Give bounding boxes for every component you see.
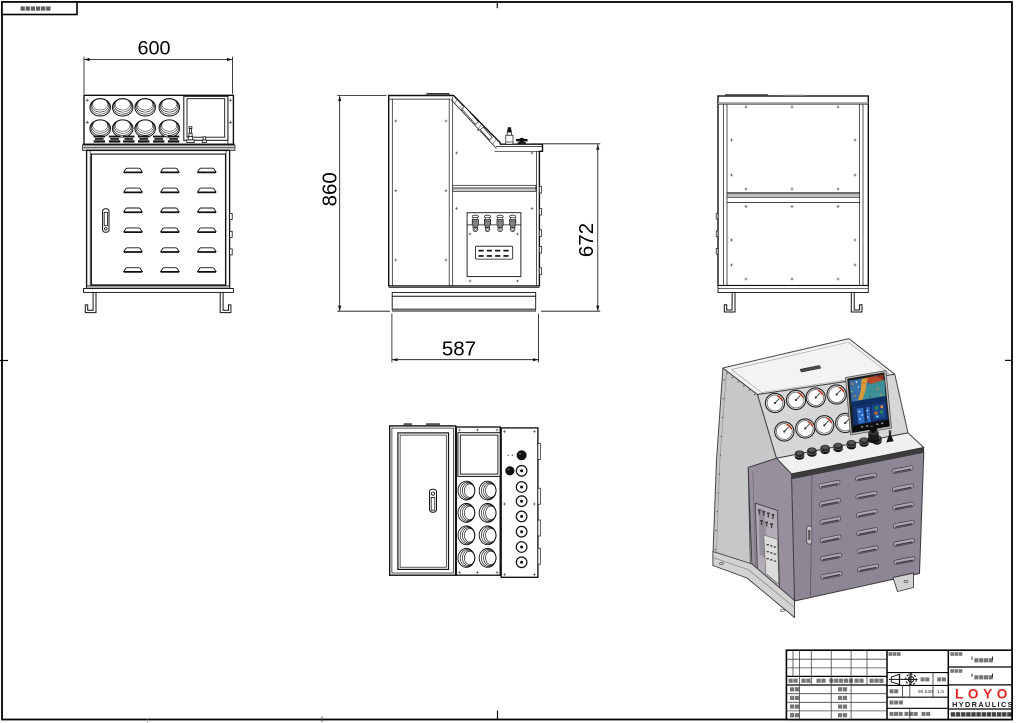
svg-text:600: 600 [137,38,170,60]
svg-text:98.530: 98.530 [918,689,933,695]
svg-text:587: 587 [442,337,476,360]
svg-text:1,5: 1,5 [937,689,944,695]
svg-text:672: 672 [575,223,598,257]
svg-text:860: 860 [319,172,342,206]
svg-text:HYDRAULICS: HYDRAULICS [952,700,1014,709]
